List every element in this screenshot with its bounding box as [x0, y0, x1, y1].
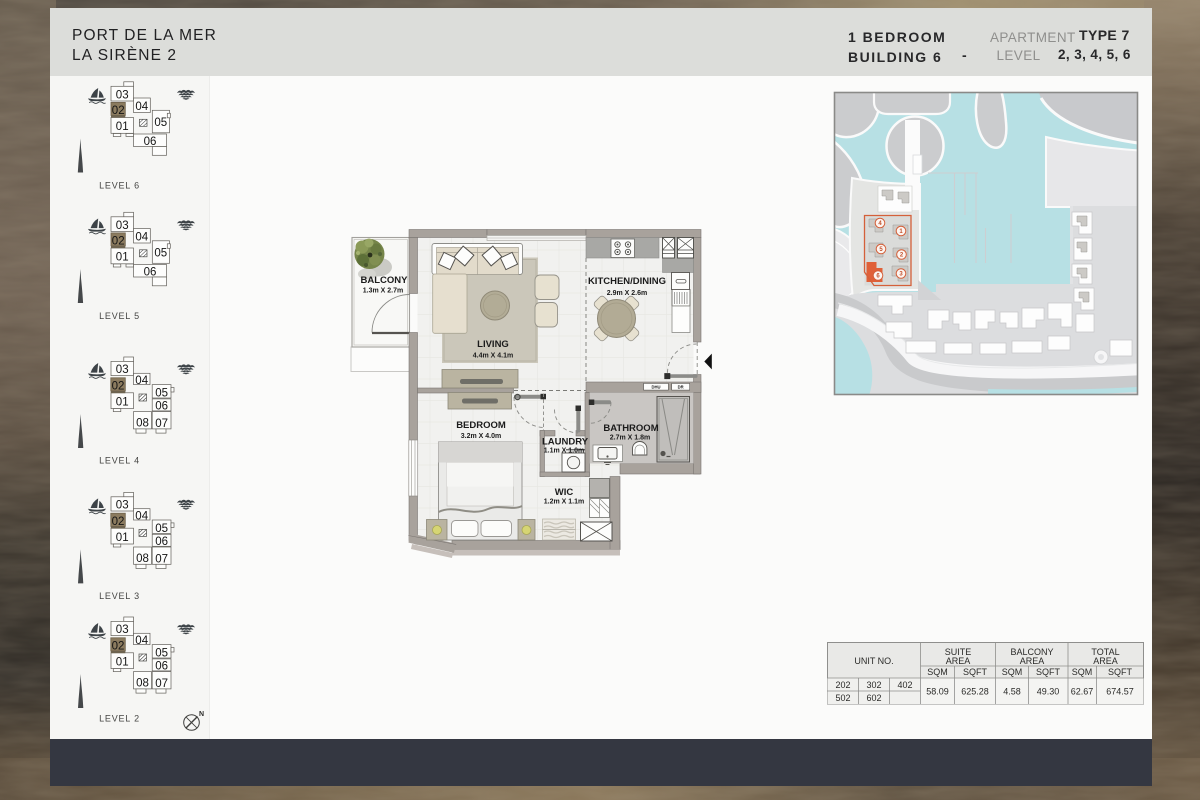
svg-text:3.2m X 4.0m: 3.2m X 4.0m — [461, 433, 501, 440]
svg-text:AREA: AREA — [1093, 656, 1118, 666]
svg-text:LEVEL 4: LEVEL 4 — [99, 456, 140, 466]
svg-text:SQM: SQM — [927, 667, 948, 677]
svg-text:402: 402 — [897, 680, 912, 690]
svg-text:LAUNDRY: LAUNDRY — [542, 437, 589, 448]
svg-text:302: 302 — [866, 680, 881, 690]
svg-text:N: N — [199, 711, 204, 718]
svg-text:502: 502 — [835, 693, 850, 703]
svg-text:2.7m X 1.8m: 2.7m X 1.8m — [610, 435, 650, 442]
svg-text:202: 202 — [835, 680, 850, 690]
svg-text:2.9m X 2.6m: 2.9m X 2.6m — [607, 290, 647, 297]
svg-text:625.28: 625.28 — [961, 687, 989, 697]
svg-text:BALCONY: BALCONY — [361, 275, 409, 286]
svg-text:DR: DR — [678, 385, 684, 390]
svg-text:SQM: SQM — [1002, 667, 1023, 677]
svg-text:SQFT: SQFT — [1108, 667, 1133, 677]
svg-text:UNIT NO.: UNIT NO. — [854, 656, 893, 666]
svg-text:DHU: DHU — [651, 385, 660, 390]
svg-text:1.2m X 1.1m: 1.2m X 1.1m — [544, 499, 584, 506]
svg-text:674.57: 674.57 — [1106, 687, 1134, 697]
svg-text:LEVEL 3: LEVEL 3 — [99, 591, 140, 601]
svg-text:602: 602 — [866, 693, 881, 703]
svg-text:LEVEL 5: LEVEL 5 — [99, 311, 140, 321]
svg-text:4.4m X 4.1m: 4.4m X 4.1m — [473, 353, 513, 360]
svg-text:4.58: 4.58 — [1003, 687, 1021, 697]
svg-text:LEVEL 6: LEVEL 6 — [99, 181, 140, 191]
svg-text:WIC: WIC — [555, 487, 574, 498]
svg-text:SQM: SQM — [1072, 667, 1093, 677]
svg-text:1.3m X 2.7m: 1.3m X 2.7m — [363, 288, 403, 295]
svg-text:AREA: AREA — [946, 656, 971, 666]
svg-text:KITCHEN/DINING: KITCHEN/DINING — [588, 276, 666, 287]
svg-text:SQFT: SQFT — [1036, 667, 1061, 677]
svg-text:49.30: 49.30 — [1037, 687, 1060, 697]
svg-text:LIVING: LIVING — [477, 339, 509, 350]
svg-text:BEDROOM: BEDROOM — [456, 420, 506, 431]
svg-text:62.67: 62.67 — [1071, 687, 1094, 697]
svg-text:BATHROOM: BATHROOM — [603, 423, 658, 434]
svg-text:LEVEL 2: LEVEL 2 — [99, 714, 140, 724]
svg-text:AREA: AREA — [1020, 656, 1045, 666]
svg-text:SQFT: SQFT — [963, 667, 988, 677]
svg-text:58.09: 58.09 — [926, 687, 949, 697]
